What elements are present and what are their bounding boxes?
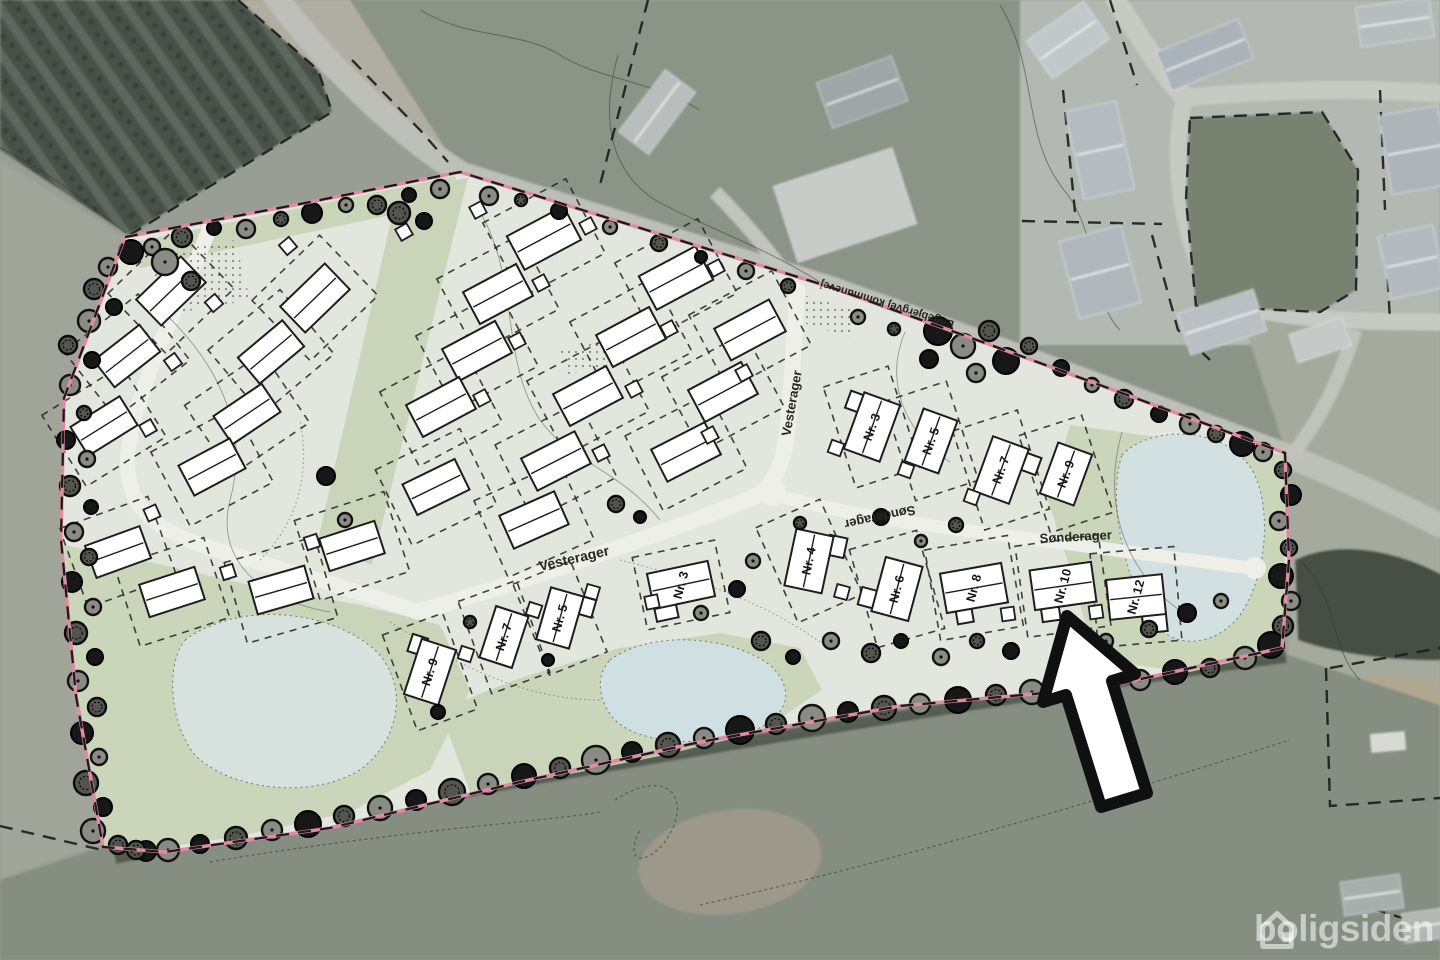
shed (1089, 605, 1104, 620)
tree (1281, 485, 1301, 505)
watermark: boligsiden (1254, 908, 1434, 950)
tree (57, 431, 75, 449)
tree (694, 606, 708, 620)
shed (1001, 607, 1016, 622)
tree (79, 451, 95, 467)
tree (634, 511, 646, 523)
shed (458, 646, 474, 662)
tree (91, 749, 107, 765)
tree (431, 180, 449, 198)
tree (967, 364, 985, 382)
shed (526, 602, 542, 618)
tree (888, 323, 900, 335)
tree (237, 220, 255, 238)
tree (786, 650, 800, 664)
tree (746, 554, 760, 568)
tree (84, 352, 100, 368)
tree (603, 220, 617, 234)
tree (729, 581, 745, 597)
tree (339, 198, 353, 212)
tree (1003, 643, 1019, 659)
aerial-site-plan: VesteragerVesteragerSønderagerSønderager… (0, 0, 1440, 960)
neighborhood-road (1185, 90, 1440, 98)
tree (85, 599, 101, 615)
tree (1275, 462, 1291, 478)
tree (274, 212, 288, 226)
road-junction (758, 478, 786, 506)
tree (582, 746, 610, 774)
tree (726, 716, 754, 744)
tree (1141, 621, 1157, 637)
tree (172, 227, 192, 247)
tree (781, 279, 795, 293)
tree (1178, 604, 1196, 622)
tree (68, 671, 88, 691)
tree (77, 406, 91, 420)
tree (464, 616, 476, 628)
tree (59, 336, 77, 354)
tree (979, 321, 999, 341)
tree (106, 299, 122, 315)
tree (915, 535, 927, 547)
shed (644, 594, 659, 609)
green-parcel (1186, 112, 1358, 312)
tree (794, 517, 806, 529)
tree (338, 513, 352, 527)
tree (920, 350, 938, 368)
tree (862, 644, 880, 662)
tree (84, 500, 98, 514)
tree (752, 632, 770, 650)
tree (694, 728, 714, 748)
aerial-building (1370, 732, 1405, 753)
tree (65, 523, 83, 541)
tree (416, 213, 432, 229)
tree (894, 634, 908, 648)
tree (81, 549, 97, 565)
tree (402, 188, 416, 202)
shed (834, 584, 850, 600)
tree (152, 249, 178, 275)
shed (584, 584, 600, 600)
tree (480, 187, 498, 205)
tree (109, 836, 127, 854)
tree (368, 196, 386, 214)
tree (933, 649, 949, 665)
tree (515, 194, 527, 206)
cul-de-sac (1244, 557, 1266, 579)
tree (799, 705, 825, 731)
tree (1270, 512, 1288, 530)
tree (656, 733, 680, 757)
tree (317, 467, 335, 485)
map-canvas: VesteragerVesteragerSønderagerSønderager… (0, 0, 1440, 960)
tree (542, 654, 554, 666)
tree (1214, 594, 1228, 608)
tree (87, 649, 103, 665)
tree (431, 705, 445, 719)
tree (302, 203, 322, 223)
tree (182, 272, 200, 290)
shed (220, 564, 236, 580)
tree (851, 310, 865, 324)
tree (88, 698, 106, 716)
tree (225, 827, 247, 849)
shed (304, 534, 320, 550)
boligsiden-logo-icon (1254, 908, 1300, 952)
tree (388, 202, 410, 224)
tree (738, 263, 754, 279)
tree (207, 221, 221, 235)
tree (949, 518, 963, 532)
tree (695, 251, 707, 263)
pond-west (173, 615, 397, 788)
tree (823, 633, 839, 649)
tree (608, 496, 624, 512)
tree-grove-east (1295, 549, 1440, 660)
tree (838, 702, 858, 722)
tree (1021, 338, 1037, 354)
tree (191, 835, 209, 853)
tree (970, 634, 984, 648)
